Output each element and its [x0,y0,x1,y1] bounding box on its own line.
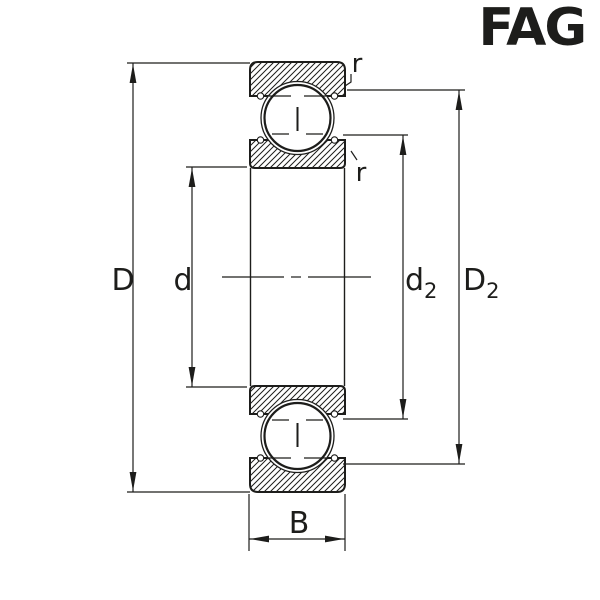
notch-icon [257,455,263,461]
label-outer-diameter: D [111,263,134,298]
label-outer-shoulder-diameter: D2 [463,263,499,303]
notch-icon [257,93,263,99]
dimension-B: B [249,494,345,551]
notch-icon [257,411,263,417]
label-chamfer-outer: r [352,49,363,79]
label-bore-diameter: d [173,263,192,298]
bearing-bottom-half [250,386,345,492]
callout-r-inner: r [351,151,367,188]
bearing-dimension-drawing: D d d2 D2 B r [0,0,600,600]
bearing-top-half [250,62,345,168]
notch-icon [257,137,263,143]
label-inner-shoulder-diameter: d2 [405,263,437,303]
notch-icon [331,93,337,99]
notch-icon [331,137,337,143]
label-chamfer-inner: r [356,158,367,188]
notch-icon [331,455,337,461]
fag-logo: FAG [479,0,585,58]
notch-icon [331,411,337,417]
bearing-cross-section [222,62,371,492]
callout-r-outer: r [345,49,363,86]
label-width: B [289,506,310,541]
